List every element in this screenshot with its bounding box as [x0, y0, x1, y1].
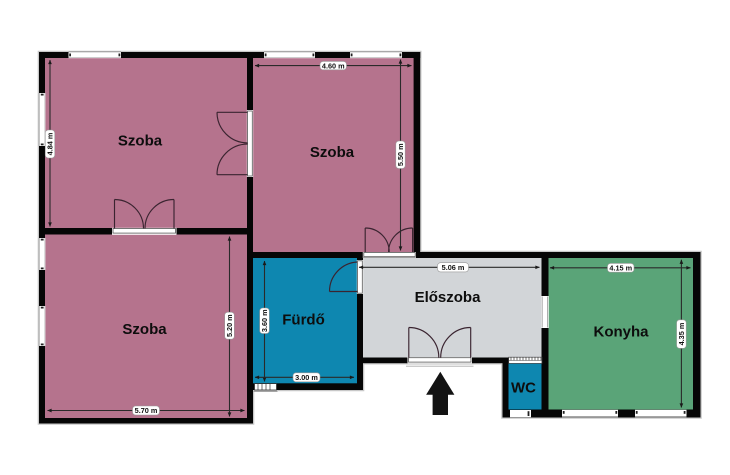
- svg-text:Előszoba: Előszoba: [415, 289, 482, 306]
- svg-text:Fürdő: Fürdő: [282, 311, 325, 328]
- svg-text:Szoba: Szoba: [118, 133, 163, 150]
- svg-text:4.35 m: 4.35 m: [677, 322, 686, 345]
- svg-text:5.06 m: 5.06 m: [442, 263, 465, 272]
- svg-text:3.00 m: 3.00 m: [295, 373, 318, 382]
- svg-text:5.70 m: 5.70 m: [135, 406, 158, 415]
- svg-text:3.60 m: 3.60 m: [260, 309, 269, 332]
- svg-text:Konyha: Konyha: [593, 323, 649, 340]
- svg-text:4.15 m: 4.15 m: [609, 264, 632, 273]
- svg-text:WC: WC: [511, 379, 536, 396]
- svg-text:5.20 m: 5.20 m: [225, 314, 234, 337]
- svg-text:Szoba: Szoba: [122, 321, 167, 338]
- svg-text:4.60 m: 4.60 m: [322, 61, 345, 70]
- svg-text:Szoba: Szoba: [310, 144, 355, 161]
- svg-text:5.50 m: 5.50 m: [396, 143, 405, 166]
- svg-text:4.84 m: 4.84 m: [46, 132, 55, 155]
